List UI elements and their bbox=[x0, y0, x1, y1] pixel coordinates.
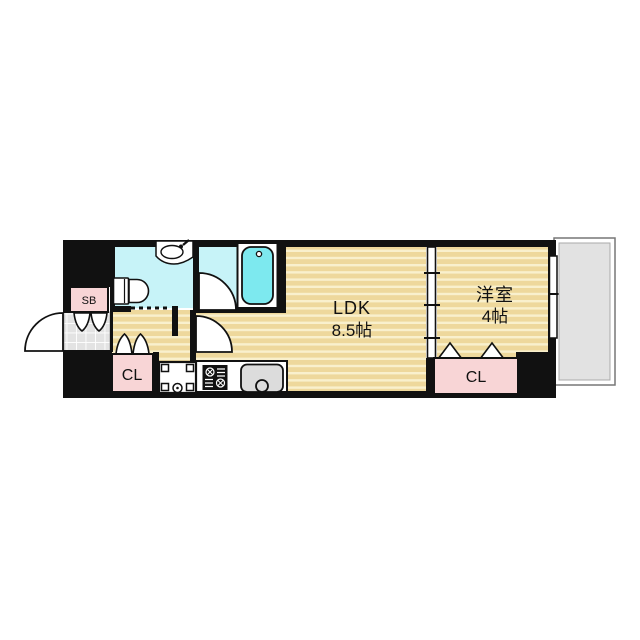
wall-top bbox=[63, 240, 556, 247]
balcony-floor bbox=[559, 243, 610, 380]
stove-icon bbox=[203, 365, 228, 390]
closet-left-label: CL bbox=[122, 367, 143, 384]
wall-corner-bottom-left bbox=[63, 350, 112, 398]
bathtub-icon bbox=[238, 243, 278, 308]
kitchen bbox=[196, 361, 287, 392]
sliding-door-panel bbox=[428, 247, 436, 358]
toilet-icon bbox=[114, 278, 149, 304]
entry-step-edge bbox=[110, 312, 113, 352]
kitchen-sink-icon bbox=[241, 365, 283, 393]
ldk-size-label: 8.5帖 bbox=[332, 321, 373, 340]
floor-plan: SB CL CL bbox=[0, 0, 640, 640]
window-icon bbox=[548, 256, 559, 338]
closet-right-label: CL bbox=[466, 369, 487, 386]
western-room-label: 洋室 bbox=[476, 285, 514, 305]
wall-corner-top-left bbox=[63, 240, 112, 287]
wall-left-upper bbox=[63, 287, 70, 313]
washbasin-icon bbox=[156, 240, 193, 264]
western-room-size-label: 4帖 bbox=[482, 307, 508, 326]
window-frame bbox=[550, 256, 558, 338]
wall-stub-hall bbox=[172, 306, 178, 336]
washer-pan-icon bbox=[159, 362, 196, 393]
floor-plan-page: SB CL CL bbox=[0, 0, 640, 640]
ldk-label: LDK bbox=[333, 298, 371, 318]
wall-toilet-bottom bbox=[110, 306, 131, 312]
shoe-box-label: SB bbox=[82, 295, 97, 307]
balcony bbox=[554, 238, 615, 385]
